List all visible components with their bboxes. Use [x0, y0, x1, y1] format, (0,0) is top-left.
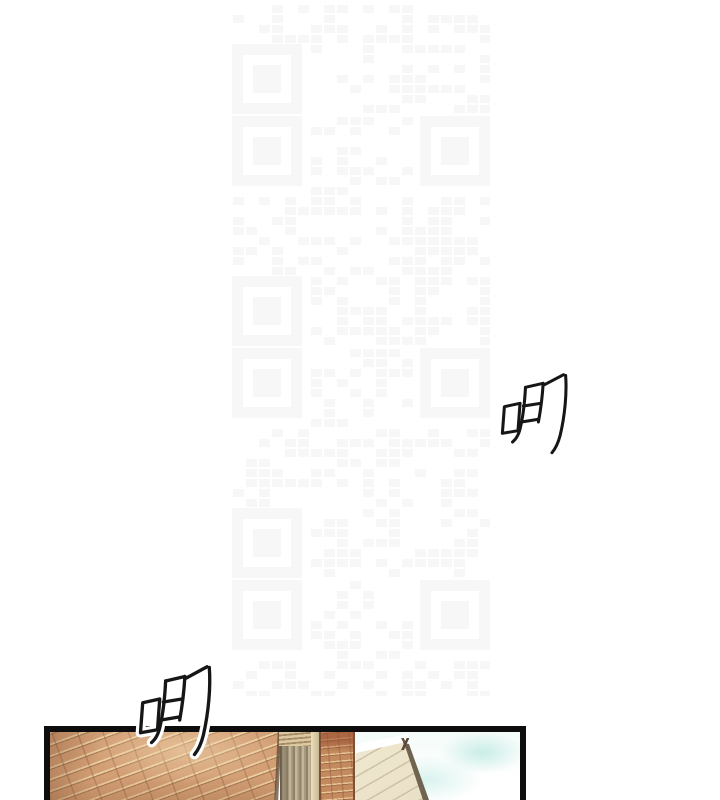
- qr-watermark: [232, 4, 490, 696]
- panel-illustration: [50, 732, 520, 800]
- comic-panel: [44, 726, 526, 800]
- sfx-glyph: [501, 374, 569, 454]
- sfx-squeak-top: 唧: [501, 374, 569, 454]
- sfx-glyph: [139, 666, 213, 756]
- window-frame-edge: [311, 732, 319, 800]
- sfx-squeak-bottom: 唧: [139, 666, 213, 756]
- brick-pillar: [319, 732, 355, 800]
- awning-bracket-marks: [398, 738, 412, 750]
- comic-page: 唧 唧: [0, 0, 720, 800]
